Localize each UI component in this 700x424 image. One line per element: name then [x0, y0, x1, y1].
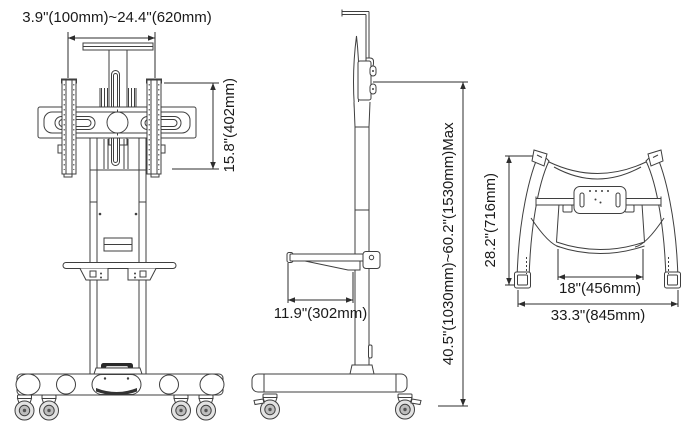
side-view-drawing — [252, 10, 468, 420]
dimension-drawing-canvas: 3.9"(100mm)~24.4"(620mm) 15.8"(402mm) 11… — [0, 0, 700, 424]
dim-label-rear-depth: 28.2"(716mm) — [483, 165, 500, 275]
dim-label-bracket-height: 15.8"(402mm) — [222, 70, 239, 180]
dim-label-tray-width: 18"(456mm) — [540, 281, 660, 298]
rear-mount-bracket — [574, 187, 626, 214]
rear-width-dimensions — [518, 249, 678, 307]
dim-label-base-width: 33.3"(845mm) — [538, 308, 658, 325]
dim-label-height-range: 40.5"(1030mm)~60.2"(1530mm)Max — [441, 125, 458, 365]
dim-label-mount-width: 3.9"(100mm)~24.4"(620mm) — [17, 10, 217, 27]
side-casters — [254, 394, 421, 419]
front-casters — [15, 395, 216, 420]
cart-line-art — [0, 0, 700, 424]
front-column — [90, 138, 146, 375]
front-view-drawing — [15, 32, 224, 420]
front-base — [16, 368, 224, 395]
side-base — [252, 365, 407, 392]
dim-label-shelf-depth: 11.9"(302mm) — [258, 306, 383, 323]
side-column — [354, 102, 372, 374]
side-shelf — [287, 252, 380, 271]
